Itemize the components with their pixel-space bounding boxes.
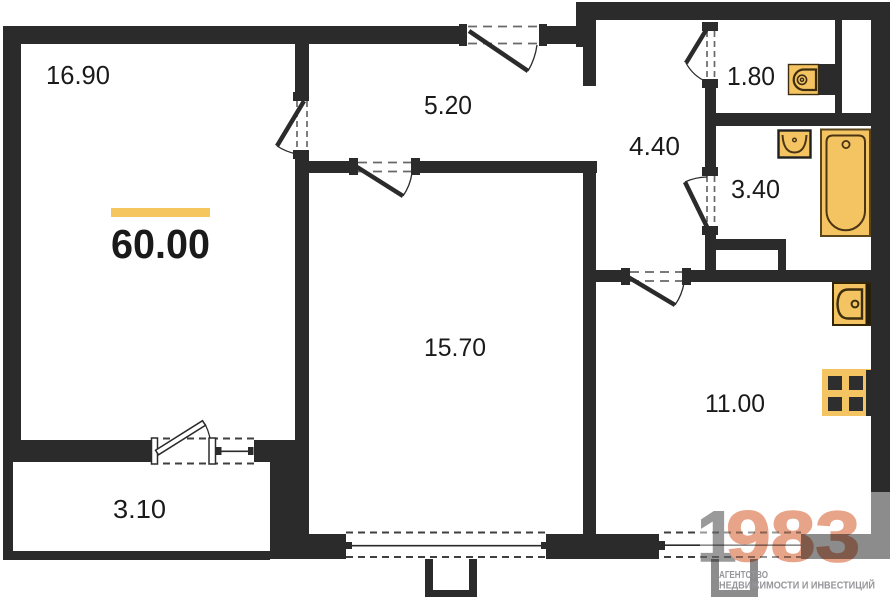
svg-text:4.40: 4.40	[629, 131, 680, 161]
svg-text:3.40: 3.40	[731, 174, 780, 204]
svg-text:60.00: 60.00	[111, 221, 210, 267]
svg-text:5.20: 5.20	[424, 90, 472, 120]
svg-text:16.90: 16.90	[46, 60, 110, 90]
svg-text:1.80: 1.80	[727, 61, 775, 91]
svg-text:АГЕНТСТВО: АГЕНТСТВО	[719, 570, 768, 581]
svg-text:11.00: 11.00	[705, 390, 765, 418]
svg-text:1983: 1983	[697, 498, 860, 577]
svg-text:НЕДВИЖИМОСТИ И ИНВЕСТИЦИЙ: НЕДВИЖИМОСТИ И ИНВЕСТИЦИЙ	[719, 579, 875, 592]
svg-text:3.10: 3.10	[113, 494, 166, 524]
svg-text:15.70: 15.70	[424, 334, 486, 362]
